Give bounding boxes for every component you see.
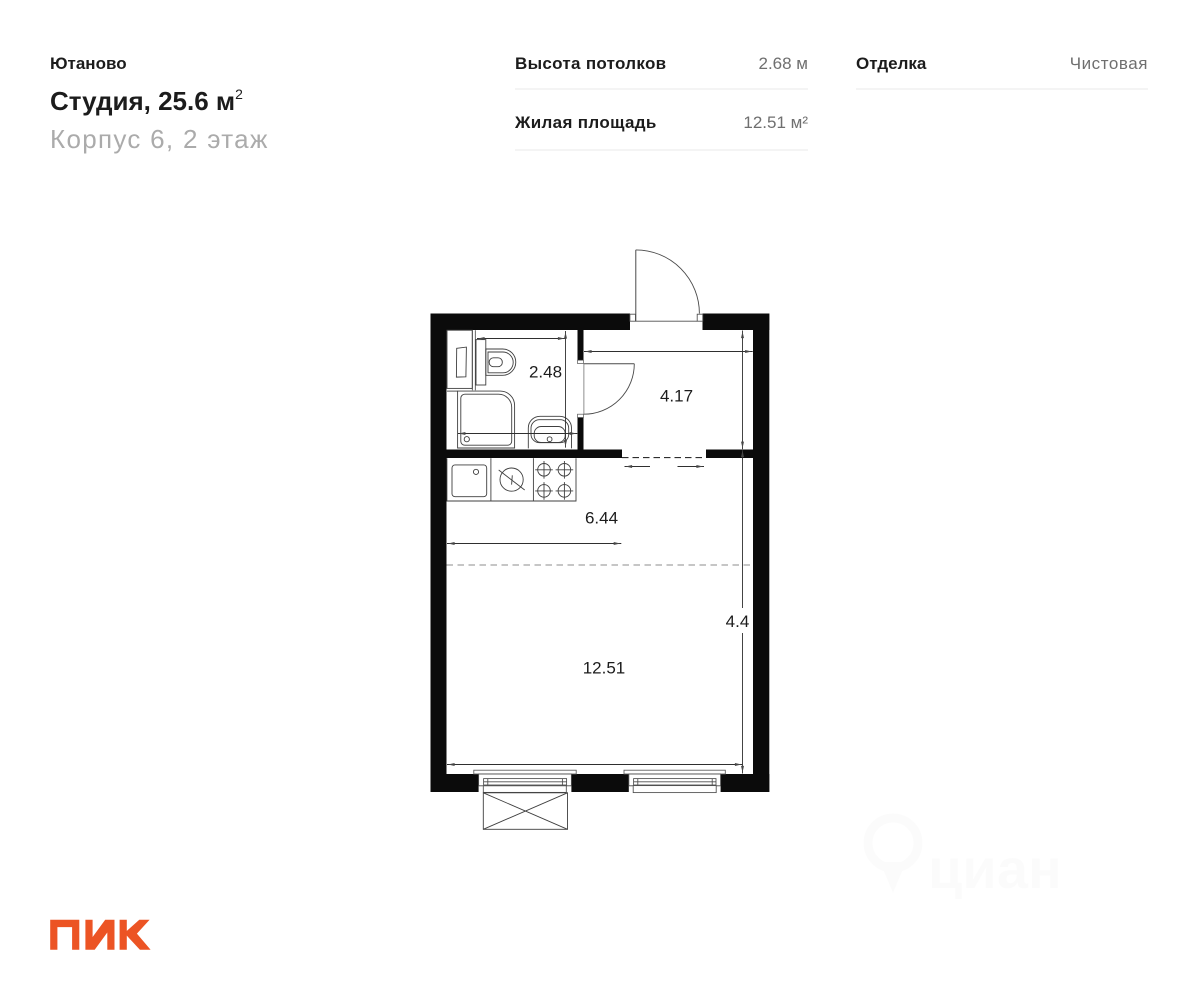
- svg-text:2.68 м: 2.68 м: [759, 54, 809, 73]
- svg-text:Жилая площадь: Жилая площадь: [514, 113, 657, 132]
- svg-text:Отделка: Отделка: [856, 54, 927, 73]
- svg-text:6.44: 6.44: [585, 509, 618, 528]
- svg-text:Высота потолков: Высота потолков: [515, 54, 666, 73]
- svg-text:2.48: 2.48: [529, 363, 562, 382]
- svg-text:12.51: 12.51: [583, 659, 626, 678]
- svg-text:12.51 м²: 12.51 м²: [743, 113, 808, 132]
- svg-text:Чистовая: Чистовая: [1070, 54, 1148, 73]
- svg-text:Корпус 6, 2 этаж: Корпус 6, 2 этаж: [50, 124, 269, 154]
- svg-text:Ютаново: Ютаново: [50, 54, 127, 73]
- svg-text:4.4: 4.4: [726, 612, 750, 631]
- svg-text:4.17: 4.17: [660, 387, 693, 406]
- svg-text:Студия, 25.6 м2: Студия, 25.6 м2: [50, 86, 243, 116]
- svg-text:циан: циан: [928, 837, 1062, 900]
